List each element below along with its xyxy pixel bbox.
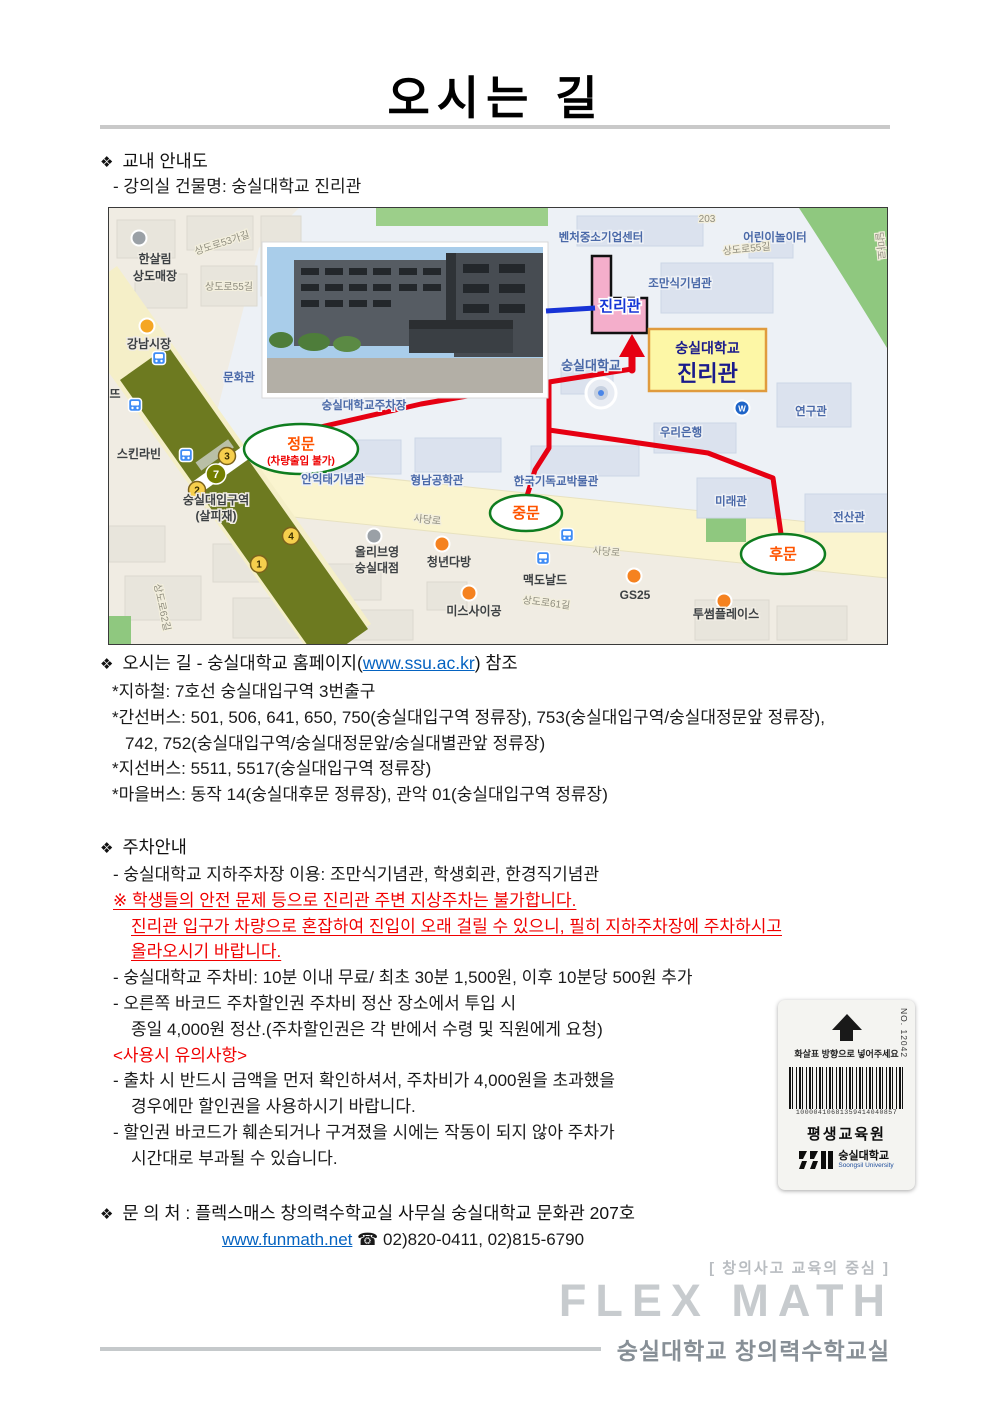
campus-map-image: 숭실대학교 진리관 xyxy=(108,207,888,645)
svg-text:숭실대학교: 숭실대학교 xyxy=(675,340,740,356)
voucher-org: 평생교육원 xyxy=(778,1123,915,1144)
parking-line: - 숭실대학교 주차비: 10분 이내 무료/ 최초 30분 1,500원, 이… xyxy=(100,965,782,991)
map-label: 상도로55길 xyxy=(205,280,253,293)
page-title: 오시는 길 xyxy=(0,62,992,128)
exit-number: 4 xyxy=(288,532,294,543)
exit-number: 1 xyxy=(256,560,262,571)
subway-line7-number: 7 xyxy=(213,469,219,481)
footer-divider xyxy=(100,1347,601,1351)
transit-line: *지하철: 7호선 숭실대입구역 3번출구 xyxy=(112,679,825,705)
poi-icon xyxy=(462,586,477,601)
directions-heading-suffix: ) 참조 xyxy=(475,653,518,673)
parking-line: 진리관 입구가 차량으로 혼잡하여 진입이 오래 걸릴 수 있으니, 필히 지하… xyxy=(100,914,782,940)
bus-stop-icon-window xyxy=(563,531,571,536)
title-divider xyxy=(100,125,890,129)
parking-line: 경우에만 할인권을 사용하시기 바랍니다. xyxy=(100,1094,782,1120)
map-label: GS25 xyxy=(620,588,651,602)
gate-label: 후문 xyxy=(769,546,797,563)
parking-lines: - 숭실대학교 지하주차장 이용: 조만식기념관, 학생회관, 한경직기념관※ … xyxy=(100,862,782,1172)
poi-icon xyxy=(367,529,382,544)
poi-icon xyxy=(132,231,147,246)
voucher-university-en: Soongsil University xyxy=(838,1162,893,1169)
map-label: 강남시장 xyxy=(127,336,171,351)
arrow-up-icon-stem xyxy=(840,1030,853,1041)
parking-line: <사용시 유의사항> xyxy=(100,1043,782,1069)
voucher-logo-row: 숭실대학교 Soongsil University xyxy=(778,1151,915,1169)
parking-line: - 숭실대학교 지하주차장 이용: 조만식기념관, 학생회관, 한경직기념관 xyxy=(100,862,782,888)
directions-heading: ❖오시는 길 - 숭실대학교 홈페이지(www.ssu.ac.kr) 참조 xyxy=(100,650,518,675)
transit-line: *지선버스: 5511, 5517(숭실대입구역 정류장) xyxy=(112,756,825,782)
parking-line: - 출차 시 반드시 금액을 먼저 확인하셔서, 주차비가 4,000원을 초과… xyxy=(100,1068,782,1094)
classroom-building-line: - 강의실 건물명: 숭실대학교 진리관 xyxy=(113,174,361,200)
map-label: 벤처중소기업센터 xyxy=(559,230,644,244)
map-label: 숭실대학교 xyxy=(561,358,621,373)
bus-stop-icon-window xyxy=(539,554,547,559)
gate-sublabel: (차량출입 불가) xyxy=(267,454,335,467)
map-label: 달마로 xyxy=(873,231,887,260)
poi-icon xyxy=(140,319,155,334)
parking-heading-text: 주차안내 xyxy=(122,837,186,857)
bus-stop-icon-wheel xyxy=(563,537,565,539)
contact-line2: www.funmath.net ☎ 02)820-0411, 02)815-67… xyxy=(222,1227,584,1253)
gate-label: 중문 xyxy=(512,505,540,522)
parking-line: ※ 학생들의 안전 문제 등으로 진리관 주변 지상주차는 불가합니다. xyxy=(100,888,782,914)
map-label: 스킨라빈 xyxy=(117,446,161,461)
ssu-homepage-link[interactable]: www.ssu.ac.kr xyxy=(363,653,475,673)
footer-row: 숭실대학교 창의력수학교실 xyxy=(100,1332,890,1366)
transit-line: *마을버스: 동작 14(숭실대후문 정류장), 관악 01(숭실대입구역 정류… xyxy=(112,782,825,808)
transit-line: *간선버스: 501, 506, 641, 650, 750(숭실대입구역 정류… xyxy=(112,705,825,731)
building-photo xyxy=(262,242,548,398)
contact-phones: ☎ 02)820-0411, 02)815-6790 xyxy=(357,1230,584,1249)
map-label: 상도매장 xyxy=(133,268,177,283)
contact-heading-text: 문 의 처 : 플렉스매스 창의력수학교실 사무실 숭실대학교 문화관 207호 xyxy=(122,1203,635,1223)
voucher-serial: NO. 12042 xyxy=(899,1008,909,1058)
bus-stop-icon-wheel xyxy=(155,360,157,362)
map-label: 안익태기념관 xyxy=(301,472,365,486)
directions-heading-prefix: 오시는 길 - 숭실대학교 홈페이지( xyxy=(122,653,362,673)
bus-stop-icon-wheel xyxy=(136,407,138,409)
green-patch-2 xyxy=(109,616,131,644)
map-label: 진리관 xyxy=(599,298,641,315)
parking-line: - 할인권 바코드가 훼손되거나 구겨졌을 시에는 작동이 되지 않아 주차가 xyxy=(100,1120,782,1146)
transit-lines: *지하철: 7호선 숭실대입구역 3번출구*간선버스: 501, 506, 64… xyxy=(112,679,825,808)
voucher-insert-note: 화살표 방향으로 넣어주세요 xyxy=(778,1047,915,1060)
jinrigwan-callout: 숭실대학교 진리관 xyxy=(649,329,766,391)
map-label: 미스사이공 xyxy=(446,603,501,618)
svg-text:진리관: 진리관 xyxy=(677,361,738,386)
map-label: 조만식기념관 xyxy=(648,276,712,290)
map-label: 숭실대입구역 xyxy=(183,492,249,507)
map-label: 문화관 xyxy=(223,370,255,384)
document-page: 오시는 길 ❖교내 안내도 - 강의실 건물명: 숭실대학교 진리관 xyxy=(0,0,992,1403)
footer-org: 숭실대학교 창의력수학교실 xyxy=(617,1332,890,1366)
map-label: 203 xyxy=(699,214,716,225)
bus-stop-icon-wheel xyxy=(187,457,189,459)
parking-heading: ❖주차안내 xyxy=(100,834,187,859)
bus-stop-icon-window xyxy=(131,401,139,406)
map-label: 한국기독교박물관 xyxy=(514,474,599,488)
campus-map-heading: ❖교내 안내도 xyxy=(100,148,208,173)
map-label: (살피재) xyxy=(195,508,236,523)
barcode xyxy=(789,1067,905,1109)
parking-line: - 오른쪽 바코드 주차할인권 주차비 정산 장소에서 투입 시 xyxy=(100,991,782,1017)
poi-icon xyxy=(435,537,450,552)
parking-line: 올라오시기 바랍니다. xyxy=(100,939,782,965)
arrow-up-icon xyxy=(832,1014,862,1030)
voucher-university: 숭실대학교 xyxy=(838,1151,893,1162)
bus-stop-icon-wheel xyxy=(568,537,570,539)
bus-stop-icon-wheel xyxy=(131,407,133,409)
campus-map-svg: 숭실대학교 진리관 xyxy=(109,208,887,644)
barcode-number: 10000410681359414040857 xyxy=(778,1109,915,1116)
map-label: 한살림 xyxy=(138,251,171,266)
section-bullet-icon: ❖ xyxy=(100,1206,113,1223)
map-label: 맥도날드 xyxy=(523,572,567,587)
section-bullet-icon: ❖ xyxy=(100,154,113,171)
map-label: 뜨 xyxy=(109,387,120,401)
map-label: 우리은행 xyxy=(660,425,702,439)
map-label: 올리브영 xyxy=(355,544,399,559)
flexmath-logo: FLEX MATH xyxy=(559,1276,894,1326)
funmath-link[interactable]: www.funmath.net xyxy=(222,1230,352,1249)
section-bullet-icon: ❖ xyxy=(100,840,113,857)
gate-label: 정문 xyxy=(287,435,315,453)
bus-stop-icon-wheel xyxy=(182,457,184,459)
poi-icon-letter: W xyxy=(738,405,746,414)
map-label: 숭실대학교주차장 xyxy=(322,398,407,412)
transit-line: 742, 752(숭실대입구역/숭실대정문앞/숭실대별관앞 정류장) xyxy=(112,731,825,757)
contact-heading: ❖문 의 처 : 플렉스매스 창의력수학교실 사무실 숭실대학교 문화관 207… xyxy=(100,1200,635,1225)
green-strip xyxy=(376,208,548,226)
parking-voucher-card: NO. 12042 화살표 방향으로 넣어주세요 100004106813594… xyxy=(778,1000,915,1190)
bus-stop-icon-window xyxy=(182,451,190,456)
bus-stop-icon-wheel xyxy=(160,360,162,362)
parking-line: 종일 4,000원 정산.(주차할인권은 각 반에서 수령 및 직원에게 요청) xyxy=(100,1017,782,1043)
section-bullet-icon: ❖ xyxy=(100,656,113,673)
bus-stop-icon-window xyxy=(155,354,163,359)
map-label: 형남공학관 xyxy=(411,473,464,487)
bus-stop-icon-wheel xyxy=(539,560,541,562)
green-patch xyxy=(706,516,746,542)
roundabout xyxy=(586,378,616,408)
bus-stop-icon-wheel xyxy=(544,560,546,562)
photo-pointer-line xyxy=(546,308,595,311)
map-label: 청년다방 xyxy=(427,554,471,569)
map-label: 사당로 xyxy=(592,545,621,559)
map-label: 미래관 xyxy=(715,494,747,508)
ssu-logo-icon xyxy=(799,1151,833,1169)
map-label: 투썸플레이스 xyxy=(693,606,759,621)
exit-number: 3 xyxy=(224,452,230,463)
map-label: 연구관 xyxy=(795,404,827,418)
campus-map-heading-text: 교내 안내도 xyxy=(122,151,207,171)
map-label: 숭실대점 xyxy=(355,560,399,575)
map-label: 전산관 xyxy=(833,510,865,524)
parking-line: 시간대로 부과될 수 있습니다. xyxy=(100,1146,782,1172)
map-label: 어린이놀이터 xyxy=(743,230,806,244)
poi-icon xyxy=(627,569,642,584)
